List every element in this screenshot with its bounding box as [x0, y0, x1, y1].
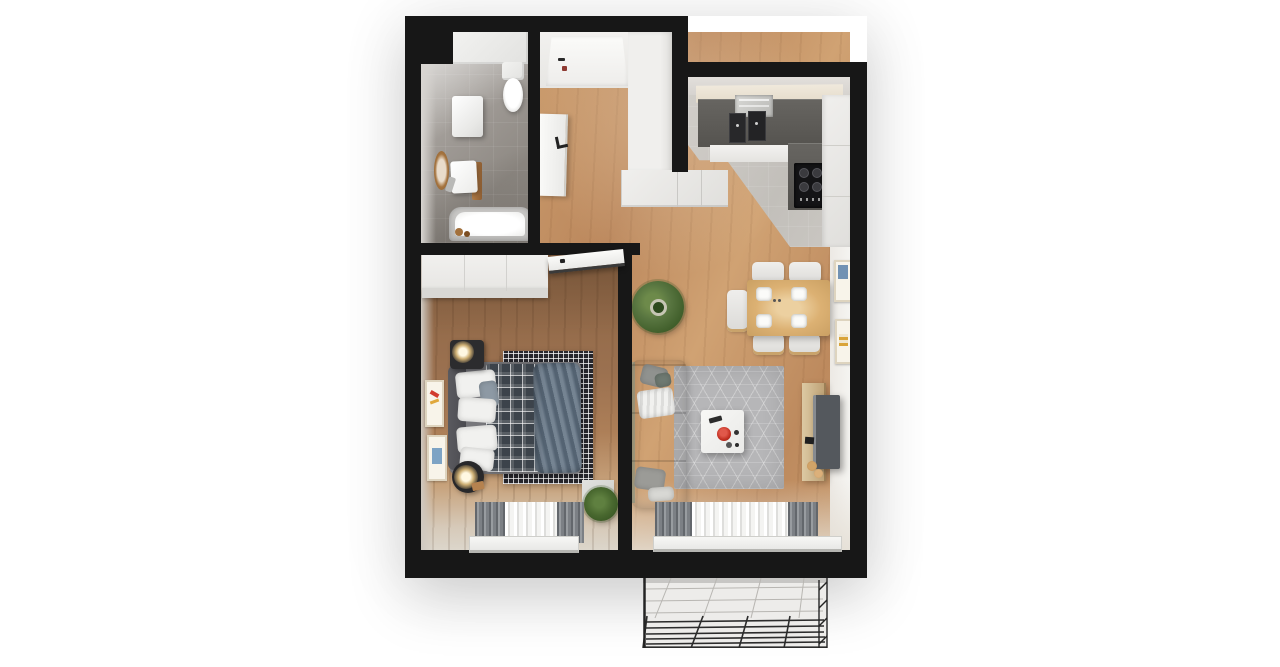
outer-wall-bottom	[405, 550, 867, 578]
dinner-plate	[756, 287, 772, 301]
frame-art-blue	[838, 265, 848, 279]
entrance-door-lock	[562, 66, 567, 71]
wood-decor-bowl	[814, 469, 823, 478]
outer-wall-right	[850, 62, 867, 550]
wall-frame-bedroom	[425, 380, 444, 427]
cooktop-burner	[812, 182, 822, 192]
kitchen-right-cabinet-column	[822, 95, 850, 247]
bath-accessory-bottle	[455, 228, 463, 236]
wall-hall-kitchen	[672, 16, 688, 172]
living-plant-pot	[650, 299, 667, 316]
kitchen-appliance-black	[748, 111, 766, 141]
tv	[813, 395, 840, 469]
bedroom-door-handle	[560, 259, 565, 264]
table-decor	[735, 443, 739, 447]
wall-bedroom-living	[618, 243, 632, 550]
toilet-bowl	[503, 78, 523, 112]
outer-wall-kitchen-top	[672, 62, 867, 77]
hall-wardrobe	[628, 32, 674, 172]
floor-plan-canvas	[0, 0, 1280, 667]
table-decor	[726, 442, 732, 448]
table-centerpiece	[773, 299, 776, 302]
open-bathroom-door	[537, 114, 568, 197]
bathroom-left-wall-band	[421, 64, 436, 243]
bedside-lamp	[452, 341, 474, 363]
dinner-plate	[791, 314, 807, 328]
table-centerpiece	[778, 299, 781, 302]
sofa-pillow	[648, 486, 675, 502]
bedroom-wardrobe	[422, 255, 548, 291]
cooktop-burner	[812, 168, 822, 178]
entrance-door-handle	[558, 58, 565, 61]
wall-bathroom-corner-block	[421, 32, 453, 64]
blue-duvet	[533, 363, 582, 474]
bathroom-door-handle	[555, 135, 568, 149]
dish-rack-line	[739, 99, 769, 101]
sofa-throw-blanket	[636, 387, 676, 420]
kitchen-appliance-black	[729, 113, 746, 143]
table-decor	[734, 430, 739, 435]
dish-rack-line	[739, 105, 769, 107]
dining-chair	[789, 334, 820, 355]
outer-wall-top	[405, 16, 688, 32]
living-window-sill	[653, 536, 842, 552]
red-bowl	[717, 427, 731, 441]
cooktop-burner	[799, 168, 809, 178]
media-device	[805, 437, 814, 445]
washing-machine	[452, 96, 483, 137]
kitchen-lower-cabinet-front	[710, 145, 790, 162]
bedroom-wardrobe-front	[422, 288, 548, 298]
cooktop-knobs	[800, 198, 820, 201]
dinner-plate	[756, 314, 772, 328]
dining-chair	[753, 334, 784, 355]
bed-pillow	[457, 397, 497, 424]
balcony	[641, 578, 831, 648]
hall-kitchen-cabinet-row	[621, 170, 728, 207]
frame-art-yellow	[839, 334, 848, 346]
cooktop-burner	[799, 182, 809, 192]
bedroom-window-sill	[469, 536, 579, 553]
dinner-plate	[791, 287, 807, 301]
cabinet-seam	[677, 170, 678, 207]
wardrobe-seam	[464, 255, 465, 291]
cabinet-seam	[701, 170, 702, 207]
outer-wall-left	[405, 16, 421, 550]
bathroom-top-block	[453, 32, 528, 64]
bedroom-plant	[584, 487, 618, 521]
bath-accessory-bottle	[464, 231, 470, 237]
frame-art-blue	[432, 448, 442, 464]
wall-bathroom-hall	[528, 32, 540, 243]
appliance-dot	[755, 122, 758, 125]
wardrobe-seam	[506, 255, 507, 291]
dining-chair	[727, 290, 748, 332]
cabinet-seam	[822, 196, 850, 197]
entrance-door	[546, 36, 628, 86]
cabinet-seam	[822, 145, 850, 146]
appliance-dot	[736, 124, 739, 127]
